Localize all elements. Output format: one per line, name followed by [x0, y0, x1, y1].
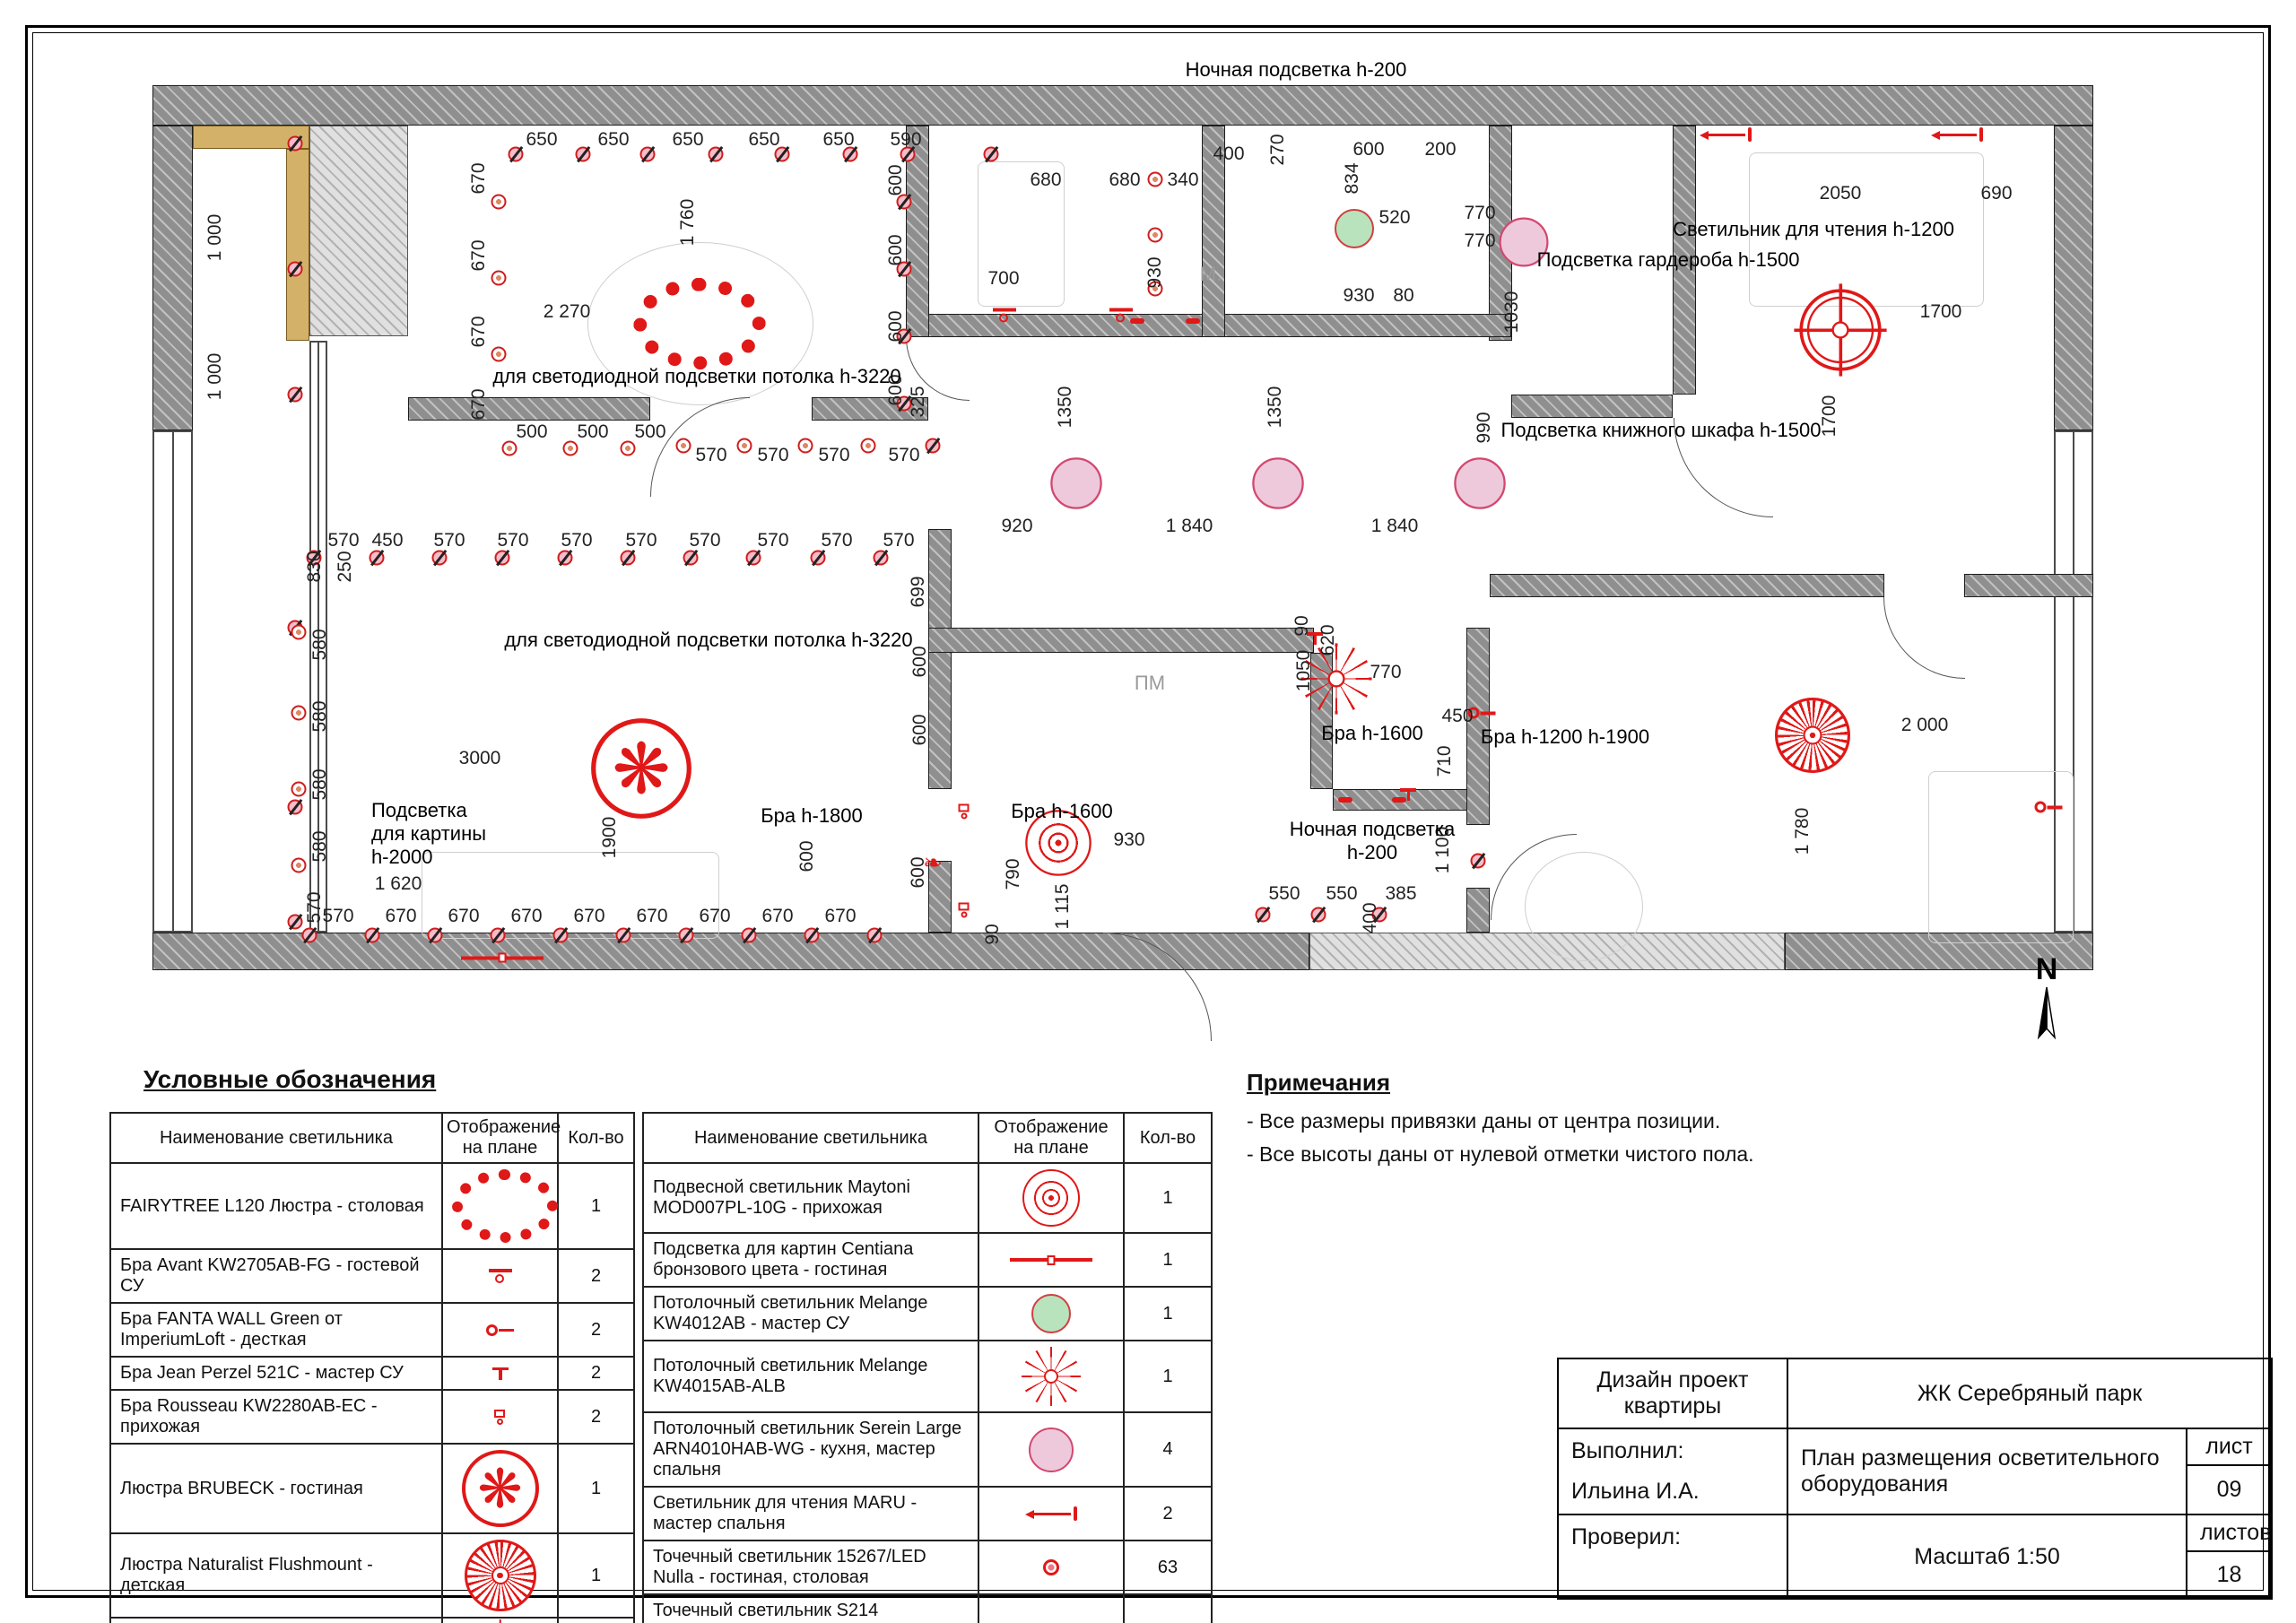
dimension-label: 670: [824, 906, 856, 927]
spot-s-icon: [288, 262, 303, 277]
rousseau-icon: [958, 804, 971, 820]
spot-o-icon: [291, 706, 307, 721]
sheets-label: листов: [2187, 1515, 2271, 1551]
maru-icon: [1700, 127, 1752, 142]
dimension-label: 3000: [459, 748, 501, 769]
dimension-label: 990: [1474, 412, 1495, 443]
dimension-label: 1 115: [1052, 884, 1074, 930]
wall-segment: [408, 397, 650, 421]
spot-s-icon: [370, 551, 385, 566]
dimension-label: 700: [987, 268, 1019, 290]
rousseau-icon: [493, 1410, 507, 1425]
fixture-name: Светильник для чтения MARU - мастер спал…: [643, 1487, 978, 1541]
fixture-qty: 2: [1124, 1487, 1212, 1541]
wall-segment: [286, 149, 309, 341]
legend-row: Подсветка для картин Centiana бронзового…: [643, 1233, 1212, 1287]
fixture-qty: 1: [1124, 1287, 1212, 1341]
dimension-label: 930: [1113, 829, 1144, 851]
nulla-icon: [1043, 1559, 1059, 1575]
dimension-label: 385: [1385, 883, 1416, 905]
spot-s-icon: [679, 928, 694, 943]
dimension-label: 1 840: [1371, 516, 1419, 537]
wall-segment: [152, 126, 193, 430]
legend-row: Люстра Naturalist Flushmount - детская1: [110, 1533, 634, 1618]
wall-segment: [309, 126, 408, 336]
s214-icon: [1130, 318, 1144, 324]
dimension-label: 270: [1267, 134, 1289, 165]
legend-header-row: Наименование светильника Отображение на …: [110, 1113, 634, 1163]
spot-s-icon: [288, 915, 303, 930]
sheet-number: 09: [2187, 1465, 2271, 1514]
dimension-label: 600: [796, 840, 818, 872]
dimension-label: 90: [1291, 615, 1313, 636]
dimension-label: 570: [433, 530, 465, 551]
fixture-name: Потолочный светильник Melange KW4015AB-A…: [643, 1341, 978, 1412]
dimension-label: 680: [1109, 169, 1140, 191]
avant-icon: [993, 308, 1016, 324]
dimension-label: 580: [309, 830, 331, 862]
plan-annotation: для светодиодной подсветки потолка h-322…: [504, 629, 912, 652]
door-swing-arc: [1491, 834, 1577, 920]
furniture-outline: [1928, 771, 2074, 943]
spot-s-icon: [621, 551, 636, 566]
fixture-name: Точечный светильник S214 WH/CH/WH LED - …: [643, 1594, 978, 1623]
plan-annotation: для светодиодной подсветки потолка h-322…: [492, 365, 900, 388]
dimension-label: 670: [468, 162, 490, 194]
dimension-label: 550: [1326, 883, 1357, 905]
spot-s-icon: [811, 551, 826, 566]
door-swing-arc: [1883, 597, 1965, 679]
spot-s-icon: [742, 928, 757, 943]
legend-heading: Условные обозначения: [143, 1065, 436, 1094]
spot-s-icon: [288, 136, 303, 152]
s214-icon: [1186, 318, 1200, 324]
fixture-name: Бра Avant KW2705AB-FG - гостевой СУ: [110, 1249, 442, 1303]
spot-s-icon: [288, 387, 303, 403]
dimension-label: 570: [818, 445, 849, 466]
spot-s-icon: [495, 551, 510, 566]
legend-row: Потолочный светильник Melange KW4012AB -…: [643, 1287, 1212, 1341]
fanta-icon: [486, 1324, 514, 1336]
alb-icon: [1022, 1347, 1081, 1406]
dimension-label: 550: [1268, 883, 1300, 905]
spot-s-icon: [640, 147, 656, 162]
dimension-label: 325: [908, 386, 929, 417]
fixture-name: Люстра Naturalist Flushmount - детская: [110, 1533, 442, 1618]
spot-o-icon: [291, 858, 307, 873]
fixture-qty: 2: [558, 1249, 634, 1303]
dimension-label: 1030: [1501, 291, 1523, 334]
titleblock-author-cell: Выполнил: Ильина И.А.: [1558, 1428, 1787, 1515]
spot-s-icon: [746, 551, 761, 566]
wall-segment: [928, 314, 1224, 337]
dimension-label: 1350: [1055, 386, 1076, 429]
plan-annotation: Бра h-1600: [1011, 800, 1113, 823]
dimension-label: 340: [1167, 169, 1198, 191]
legend-row: Точечный светильник S214 WH/CH/WH LED - …: [643, 1594, 1212, 1623]
dimension-label: 500: [577, 421, 608, 443]
legend-col-qty: Кол-во: [558, 1113, 634, 1163]
maru-icon: [1025, 1506, 1077, 1521]
legend-col-icon: Отображение на плане: [978, 1113, 1124, 1163]
mgreen-icon: [1031, 1294, 1071, 1333]
titleblock-project: Дизайн проект квартиры: [1558, 1358, 1787, 1428]
plan-annotation: Ночная подсветка h-200: [1290, 818, 1455, 864]
dimension-label: 834: [1342, 162, 1363, 194]
dimension-label: 690: [1980, 183, 2012, 204]
dimension-label: 920: [1001, 516, 1032, 537]
fixture-qty: 1: [558, 1533, 634, 1618]
plan-annotation: Подсветка гардероба h-1500: [1537, 248, 1800, 272]
dimension-label: 770: [1464, 203, 1495, 224]
plan-annotation: Подсветка книжного шкафа h-1500: [1501, 419, 1822, 442]
plan-annotation: Бра h-1800: [761, 804, 863, 828]
plan-annotation: ПМ: [1135, 672, 1165, 695]
dimension-label: 570: [689, 530, 720, 551]
dimension-label: 570: [757, 530, 788, 551]
note-item: - Все размеры привязки даны от центра по…: [1247, 1109, 1754, 1133]
spot-o-icon: [1148, 228, 1163, 243]
north-arrow-icon: [2033, 987, 2060, 1064]
dimension-label: 570: [888, 445, 919, 466]
legend-row: Светильник для чтения MARU - мастер спал…: [643, 1487, 1212, 1541]
dimension-label: 400: [1213, 143, 1244, 165]
spot-o-icon: [491, 195, 507, 210]
serein-icon: [1050, 457, 1102, 509]
spot-o-icon: [291, 625, 307, 640]
fixture-qty: 2: [558, 1357, 634, 1390]
legend-row: Бра Avant KW2705AB-FG - гостевой СУ2: [110, 1249, 634, 1303]
dimension-label: 670: [510, 906, 542, 927]
fixture-qty: 63: [1124, 1541, 1212, 1594]
sheets-number: 18: [2187, 1551, 2271, 1598]
s214-icon: [1392, 797, 1406, 803]
legend-row: Подвесной светильник Maytoni MOD007PL-10…: [643, 1163, 1212, 1233]
s214-icon: [1338, 797, 1352, 803]
spot-s-icon: [709, 147, 724, 162]
fixture-name: Бра Rousseau KW2280AB-EC - прихожая: [110, 1390, 442, 1444]
spot-s-icon: [874, 551, 889, 566]
dimension-label: 80: [1393, 285, 1413, 307]
legend-row: Бра Jean Perzel 521C - мастер СУ2: [110, 1357, 634, 1390]
spot-s-icon: [897, 195, 912, 210]
legend-row: FAIRYTREE L120 Люстра - столовая1: [110, 1163, 634, 1249]
dimension-label: 670: [573, 906, 604, 927]
dimension-label: 580: [309, 768, 331, 800]
fixture-qty: 1: [558, 1163, 634, 1249]
dimension-label: 1 000: [204, 353, 226, 401]
dimension-label: 570: [883, 530, 914, 551]
title-block: Дизайн проект квартиры ЖК Серебряный пар…: [1557, 1358, 2273, 1600]
fixture-name: FAIRYTREE L120 Люстра - столовая: [110, 1163, 442, 1249]
dimension-label: 670: [468, 316, 490, 347]
dimension-label: 830: [304, 551, 326, 582]
dimension-label: 1 760: [677, 199, 699, 247]
drawing-page: ❋❧6506506506506505906706706706701 7602 2…: [0, 0, 2296, 1623]
wall-segment: [2054, 126, 2093, 430]
spot-s-icon: [491, 928, 506, 943]
dimension-label: 680: [1030, 169, 1061, 191]
dimension-label: 570: [561, 530, 592, 551]
dimension-label: 520: [1378, 207, 1410, 229]
dimension-label: 450: [371, 530, 403, 551]
spot-s-icon: [288, 800, 303, 815]
plan-annotation: М.: [1200, 263, 1222, 286]
legend-row: Потолочный светильник Melange KW4015AB-A…: [643, 1341, 1212, 1412]
legend-row: Бра FANTA WALL Green от ImperiumLoft - д…: [110, 1303, 634, 1357]
author-name: Ильина И.А.: [1571, 1479, 1774, 1505]
author-label: Выполнил:: [1571, 1438, 1774, 1464]
dimension-label: 250: [335, 551, 356, 582]
dimension-label: 770: [1464, 230, 1495, 252]
dimension-label: 1 620: [375, 873, 422, 895]
dimension-label: 670: [468, 239, 490, 271]
note-item: - Все высоты даны от нулевой отметки чис…: [1247, 1142, 1754, 1167]
spot-s-icon: [509, 147, 524, 162]
plan-annotation: Светильник для чтения h-1200: [1673, 218, 1954, 241]
dimension-label: 670: [636, 906, 667, 927]
wall-segment: [928, 529, 952, 789]
dimension-label: 570: [695, 445, 726, 466]
legend-table-left: Наименование светильника Отображение на …: [109, 1112, 635, 1623]
spot-s-icon: [365, 928, 380, 943]
dimension-label: 670: [761, 906, 793, 927]
legend-col-icon: Отображение на плане: [442, 1113, 558, 1163]
dimension-label: 1700: [1819, 395, 1840, 438]
spot-s-icon: [428, 928, 443, 943]
fixture-name: Подсветка для картин Centiana бронзового…: [643, 1233, 978, 1287]
spot-s-icon: [926, 438, 941, 454]
scale-label: Масштаб 1:50: [1787, 1515, 2187, 1599]
north-arrow: N: [2020, 952, 2074, 1069]
legend-col-name: Наименование светильника: [643, 1113, 978, 1163]
fixture-name: Потолочный светильник Serein Large ARN40…: [643, 1412, 978, 1487]
fairytree-icon: [452, 1169, 558, 1243]
dimension-label: 580: [309, 700, 331, 732]
spot-s-icon: [1471, 854, 1486, 869]
spot-s-icon: [683, 551, 699, 566]
legend-row: Потолочный светильник Serein Large ARN40…: [643, 1412, 1212, 1487]
dimension-label: 1700: [1920, 301, 1962, 323]
plan-annotation: Бра h-1200 h-1900: [1481, 725, 1649, 749]
legend-row: Бра Rousseau KW2280AB-EC - прихожая2: [110, 1390, 634, 1444]
rousseau-icon: [958, 903, 971, 918]
fixture-qty: 1: [1124, 1341, 1212, 1412]
dimension-label: 600: [908, 856, 929, 888]
dimension-label: 670: [468, 388, 490, 420]
dimension-label: 1 780: [1792, 808, 1813, 855]
notes-block: Примечания - Все размеры привязки даны о…: [1247, 1069, 1754, 1176]
dimension-label: 650: [597, 129, 629, 151]
dimension-label: 600: [885, 234, 907, 265]
spot-o-icon: [491, 347, 507, 362]
spot-o-icon: [1148, 172, 1163, 187]
dimension-label: 2 270: [544, 301, 591, 323]
fixture-name: Бра Jean Perzel 521C - мастер СУ: [110, 1357, 442, 1390]
legend-header-row: Наименование светильника Отображение на …: [643, 1113, 1212, 1163]
dimension-label: 710: [1434, 745, 1456, 777]
legend-col-qty: Кол-во: [1124, 1113, 1212, 1163]
fixture-qty: 2: [558, 1303, 634, 1357]
dimension-label: 570: [821, 530, 852, 551]
wall-segment: [1490, 574, 1884, 597]
spot-o-icon: [737, 438, 752, 454]
dimension-label: 1900: [599, 817, 621, 859]
fixture-name: Люстра TERESA - мастер спальня: [110, 1618, 442, 1623]
dimension-label: 670: [448, 906, 479, 927]
dimension-label: 570: [757, 445, 788, 466]
sheet-label: лист: [2187, 1429, 2271, 1465]
fixture-qty: 4: [1124, 1412, 1212, 1487]
dimension-label: 650: [748, 129, 779, 151]
fixture-name: Подвесной светильник Maytoni MOD007PL-10…: [643, 1163, 978, 1233]
avant-icon: [489, 1269, 512, 1284]
fixture-qty: 2: [558, 1390, 634, 1444]
wall-segment: [152, 430, 193, 933]
dimension-label: 570: [327, 530, 359, 551]
spot-o-icon: [563, 441, 578, 456]
serein-icon: [1029, 1428, 1074, 1472]
dimension-label: 770: [1370, 662, 1401, 683]
brubeck-icon: ❋: [462, 1450, 539, 1527]
spot-o-icon: [798, 438, 813, 454]
fixture-qty: 1: [1124, 1163, 1212, 1233]
dimension-label: 600: [909, 714, 931, 745]
legend-row: Точечный светильник 15267/LED Nulla - го…: [643, 1541, 1212, 1594]
centiana-icon: [1010, 1255, 1092, 1265]
notes-heading: Примечания: [1247, 1069, 1754, 1097]
spot-s-icon: [558, 551, 573, 566]
spot-o-icon: [676, 438, 691, 454]
fixture-qty: 1: [558, 1618, 634, 1623]
fixture-qty: 4: [1124, 1594, 1212, 1623]
dimension-label: 650: [672, 129, 703, 151]
legend-row: Люстра TERESA - мастер спальня1: [110, 1618, 634, 1623]
wall-segment: [152, 85, 2093, 126]
spot-s-icon: [302, 928, 317, 943]
titleblock-object: ЖК Серебряный парк: [1787, 1358, 2272, 1428]
fixture-qty: 1: [558, 1444, 634, 1533]
jean-icon: [492, 1367, 509, 1380]
plan-annotation: Бра h-1600: [1321, 722, 1423, 745]
dimension-label: 670: [699, 906, 730, 927]
wall-segment: [1466, 888, 1490, 933]
spot-s-icon: [553, 928, 569, 943]
checker-label: Проверил:: [1558, 1515, 1787, 1599]
dimension-label: 590: [890, 129, 921, 151]
brubeck-icon: ❋: [591, 718, 691, 819]
dimension-label: 930: [1343, 285, 1374, 307]
fixture-name: Бра FANTA WALL Green от ImperiumLoft - д…: [110, 1303, 442, 1357]
dimension-label: 1050: [1293, 650, 1315, 692]
dimension-label: 500: [516, 421, 547, 443]
dimension-label: 2050: [1820, 183, 1862, 204]
spot-o-icon: [291, 782, 307, 797]
dimension-label: 670: [385, 906, 416, 927]
dimension-label: 930: [1144, 256, 1166, 288]
spot-s-icon: [804, 928, 820, 943]
wall-segment: [1964, 574, 2093, 597]
dimension-label: 650: [526, 129, 557, 151]
fixture-name: Люстра BRUBECK - гостиная: [110, 1444, 442, 1533]
naturalist-icon: [465, 1540, 536, 1611]
titleblock-doc-title: План размещения осветительного оборудова…: [1787, 1428, 2187, 1515]
fixture-name: Потолочный светильник Melange KW4012AB -…: [643, 1287, 978, 1341]
north-label: N: [2020, 952, 2074, 987]
legend-row: Люстра BRUBECK - гостиная❋1: [110, 1444, 634, 1533]
dimension-label: 1 000: [204, 214, 226, 262]
spot-s-icon: [1311, 907, 1326, 923]
dimension-label: 90: [982, 924, 1004, 944]
dimension-label: 699: [908, 576, 929, 607]
spot-o-icon: [491, 271, 507, 286]
spot-s-icon: [432, 551, 448, 566]
fanta-icon: [2035, 802, 2063, 813]
fixture-name: Точечный светильник 15267/LED Nulla - го…: [643, 1541, 978, 1594]
plan-annotation: Ночная подсветка h-200: [1186, 58, 1407, 82]
serein-icon: [1454, 457, 1506, 509]
wall-segment: [1511, 395, 1673, 418]
spot-s-icon: [867, 928, 883, 943]
fairytree-icon: [633, 278, 766, 370]
spot-s-icon: [1256, 907, 1271, 923]
spot-s-icon: [616, 928, 631, 943]
dimension-label: 500: [634, 421, 665, 443]
maytoni-icon: [1022, 1169, 1080, 1227]
dimension-label: 570: [322, 906, 353, 927]
legend-col-name: Наименование светильника: [110, 1113, 442, 1163]
spot-o-icon: [861, 438, 876, 454]
dimension-label: 200: [1424, 139, 1456, 161]
spot-s-icon: [576, 147, 591, 162]
fixture-qty: 1: [1124, 1233, 1212, 1287]
dimension-label: 790: [1003, 858, 1024, 890]
legend-table-right: Наименование светильника Отображение на …: [642, 1112, 1213, 1623]
dimension-label: 400: [1360, 902, 1381, 933]
dimension-label: 620: [1318, 624, 1339, 655]
maru-icon: [1931, 127, 1983, 142]
dimension-label: 600: [885, 310, 907, 342]
dimension-label: 570: [497, 530, 528, 551]
teresa-icon: [1799, 289, 1881, 370]
spot-s-icon: [984, 147, 999, 162]
dimension-label: 450: [1441, 706, 1473, 727]
spot-o-icon: [621, 441, 636, 456]
mgreen-icon: [1335, 209, 1374, 248]
dimension-label: 600: [1352, 139, 1384, 161]
naturalist-icon: [1775, 698, 1850, 773]
dimension-label: 1350: [1265, 386, 1286, 429]
spot-o-icon: [502, 441, 517, 456]
wall-segment: [1224, 314, 1511, 337]
dimension-label: 2 000: [1901, 715, 1949, 736]
plan-annotation: Подсветка для картины h-2000: [371, 799, 486, 869]
wall-segment: [928, 628, 1314, 653]
dimension-label: 650: [822, 129, 854, 151]
centiana-icon: [461, 953, 544, 963]
dimension-label: 1 840: [1166, 516, 1213, 537]
dimension-label: 570: [625, 530, 657, 551]
dimension-label: 600: [885, 164, 907, 195]
serein-icon: [1252, 457, 1304, 509]
dimension-label: 580: [309, 629, 331, 660]
